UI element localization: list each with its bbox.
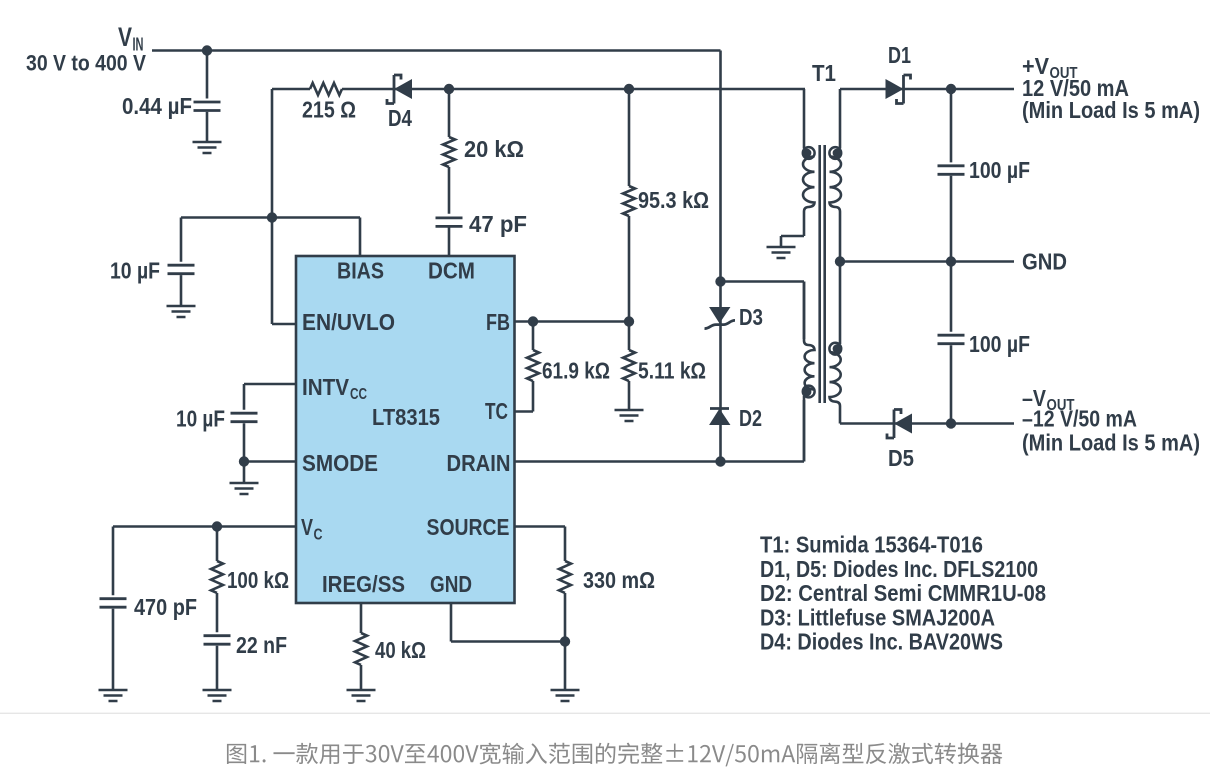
svg-text:D2: Central Semi CMMR1U-08: D2: Central Semi CMMR1U-08	[760, 580, 1046, 606]
svg-text:DCM: DCM	[428, 258, 475, 284]
svg-text:D2: D2	[739, 405, 762, 431]
svg-text:95.3 kΩ: 95.3 kΩ	[638, 187, 709, 213]
svg-text:GND: GND	[430, 571, 472, 597]
svg-text:FB: FB	[486, 309, 510, 335]
svg-text:EN/UVLO: EN/UVLO	[302, 309, 395, 335]
svg-text:DRAIN: DRAIN	[447, 450, 511, 476]
svg-text:100 µF: 100 µF	[969, 331, 1030, 357]
svg-text:D1: D1	[888, 42, 911, 68]
svg-text:TC: TC	[485, 398, 508, 424]
svg-text:330 mΩ: 330 mΩ	[583, 567, 655, 593]
svg-text:10 µF: 10 µF	[176, 406, 225, 432]
svg-text:V: V	[118, 22, 132, 52]
svg-text:470 pF: 470 pF	[134, 594, 197, 620]
svg-text:30 V to 400 V: 30 V to 400 V	[26, 51, 146, 76]
svg-text:SMODE: SMODE	[302, 450, 378, 476]
svg-text:LT8315: LT8315	[372, 404, 440, 430]
svg-text:47 pF: 47 pF	[469, 211, 527, 237]
svg-text:T1: T1	[812, 60, 836, 86]
svg-text:(Min Load Is 5 mA): (Min Load Is 5 mA)	[1022, 97, 1200, 123]
svg-text:GND: GND	[1022, 249, 1067, 275]
svg-text:D5: D5	[888, 445, 914, 471]
svg-text:CC: CC	[350, 386, 367, 403]
svg-text:0.44 µF: 0.44 µF	[122, 93, 192, 119]
svg-text:INTV: INTV	[302, 374, 350, 400]
svg-text:V: V	[301, 514, 314, 540]
svg-text:100 kΩ: 100 kΩ	[227, 567, 289, 593]
svg-text:D4: D4	[388, 105, 412, 131]
svg-text:D3: D3	[739, 304, 763, 330]
svg-text:5.11 kΩ: 5.11 kΩ	[638, 358, 706, 384]
svg-text:T1: Sumida 15364-T016: T1: Sumida 15364-T016	[760, 532, 983, 558]
svg-text:BIAS: BIAS	[337, 258, 384, 284]
svg-text:22 nF: 22 nF	[236, 632, 287, 658]
svg-text:D1, D5: Diodes Inc. DFLS2100: D1, D5: Diodes Inc. DFLS2100	[760, 556, 1038, 582]
svg-text:IREG/SS: IREG/SS	[322, 571, 405, 597]
svg-text:D3: Littlefuse SMAJ200A: D3: Littlefuse SMAJ200A	[760, 604, 995, 630]
svg-text:61.9 kΩ: 61.9 kΩ	[542, 358, 610, 384]
svg-text:215 Ω: 215 Ω	[302, 97, 356, 123]
svg-text:100 µF: 100 µF	[969, 157, 1030, 183]
svg-text:C: C	[314, 527, 323, 544]
svg-text:20 kΩ: 20 kΩ	[464, 136, 524, 162]
svg-text:D4: Diodes Inc. BAV20WS: D4: Diodes Inc. BAV20WS	[760, 629, 1003, 655]
svg-text:SOURCE: SOURCE	[427, 514, 510, 540]
svg-text:–12 V/50 mA: –12 V/50 mA	[1022, 406, 1137, 432]
svg-text:40 kΩ: 40 kΩ	[375, 637, 426, 663]
svg-text:10 µF: 10 µF	[110, 258, 160, 284]
svg-text:(Min Load Is 5 mA): (Min Load Is 5 mA)	[1022, 430, 1200, 456]
